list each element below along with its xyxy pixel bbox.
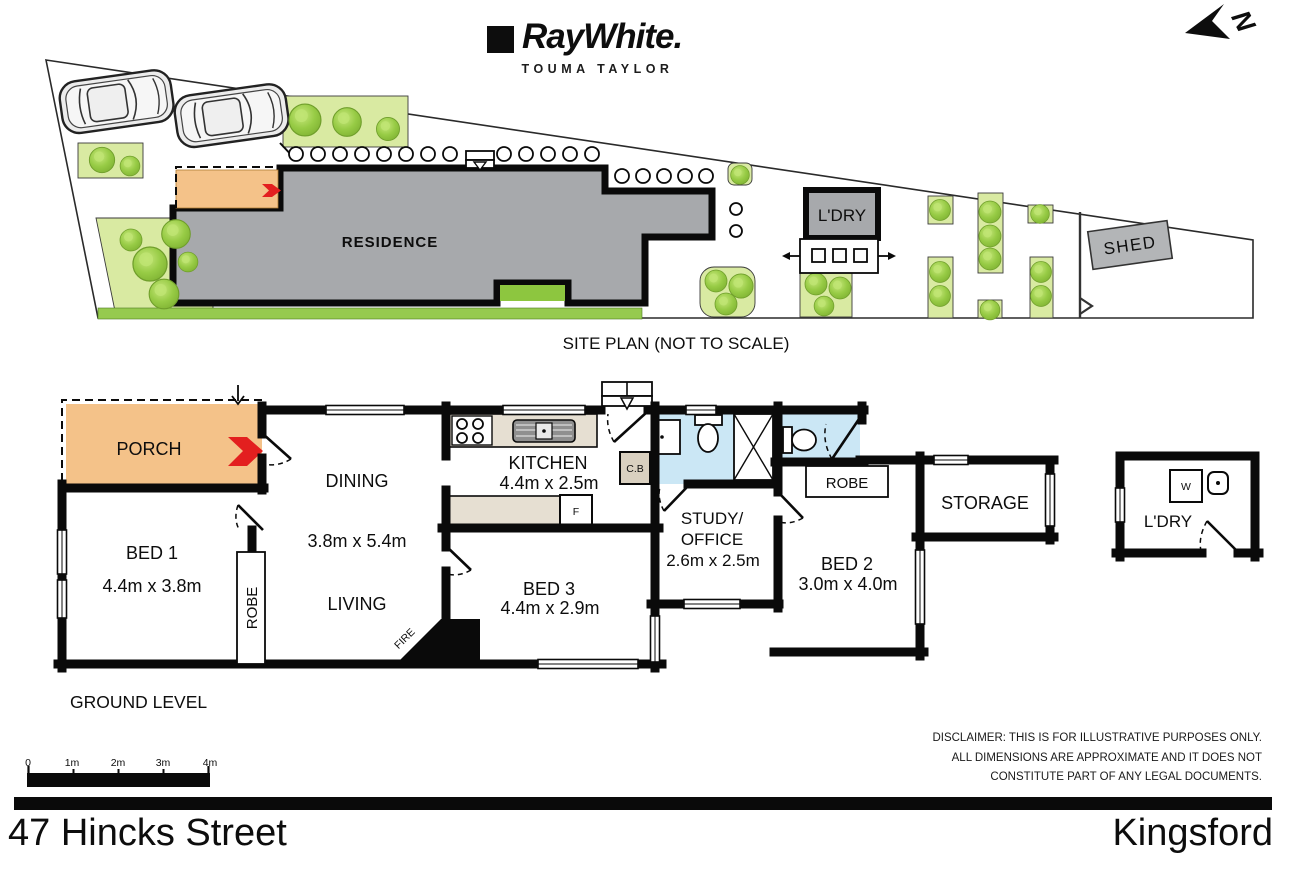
living-label: LIVING (327, 594, 386, 614)
scale-4m: 4m (203, 757, 218, 769)
disclaimer: DISCLAIMER: THIS IS FOR ILLUSTRATIVE PUR… (932, 729, 1262, 788)
floorplan-page: RayWhite. TOUMA TAYLOR (0, 0, 1289, 870)
robe-bed2-label: ROBE (826, 475, 869, 492)
study-label-line2: OFFICE (681, 530, 743, 549)
suburb: Kingsford (1112, 812, 1273, 855)
north-label: N (1225, 6, 1261, 38)
washer-label: W (1181, 481, 1191, 493)
rear-steps (602, 382, 652, 409)
kitchen-label: KITCHEN (508, 453, 587, 473)
porch-label: PORCH (116, 439, 181, 459)
site-plan: L'DRY SHED RESIDENCE SITE PLAN (NOT TO S (46, 60, 1253, 353)
scale-2m: 2m (111, 757, 126, 769)
wc-toilet-icon (783, 427, 816, 453)
laundry-label: L'DRY (1144, 512, 1192, 531)
bed3-dims: 4.4m x 2.9m (500, 598, 599, 618)
separator-bar (14, 797, 1272, 810)
bed2-dims: 3.0m x 4.0m (798, 574, 897, 594)
shower-icon (734, 414, 773, 480)
storage-label: STORAGE (941, 493, 1029, 513)
cupboard-label: C.B (626, 463, 644, 475)
kitchen-dims: 4.4m x 2.5m (499, 473, 598, 493)
residence-deck-garden (500, 285, 565, 301)
vanity-icon (656, 420, 680, 454)
residence-label: RESIDENCE (342, 234, 439, 251)
site-plan-caption: SITE PLAN (NOT TO SCALE) (563, 334, 790, 353)
cooktop-icon (452, 416, 492, 445)
level-label: GROUND LEVEL (70, 692, 207, 712)
sink-icon (513, 420, 575, 442)
disclaimer-line: DISCLAIMER: THIS IS FOR ILLUSTRATIVE PUR… (932, 729, 1262, 749)
north-compass-icon: N (1185, 4, 1261, 39)
site-rear-steps (466, 151, 494, 170)
scale-1m: 1m (65, 757, 80, 769)
disclaimer-line: CONSTITUTE PART OF ANY LEGAL DOCUMENTS. (932, 768, 1262, 788)
bed1-label: BED 1 (126, 543, 178, 563)
scale-bar: 0 1m 2m 3m 4m (25, 757, 217, 787)
bed1-dims: 4.4m x 3.8m (102, 576, 201, 596)
site-laundry-label: L'DRY (818, 206, 866, 225)
disclaimer-line: ALL DIMENSIONS ARE APPROXIMATE AND IT DO… (932, 749, 1262, 769)
floor-plan: F C.B FIRE (58, 382, 1260, 712)
street-address: 47 Hincks Street (8, 812, 287, 855)
living-dining-dims: 3.8m x 5.4m (307, 531, 406, 551)
bed2-label: BED 2 (821, 554, 873, 574)
study-label-line1: STUDY/ (681, 509, 744, 528)
robe-bed1-label: ROBE (244, 587, 261, 630)
fridge-label: F (573, 506, 579, 518)
site-porch (176, 170, 278, 208)
dining-label: DINING (326, 471, 389, 491)
bed3-label: BED 3 (523, 579, 575, 599)
laundry-fittings: W (1170, 470, 1228, 502)
lawn-strip (98, 308, 642, 319)
study-dims: 2.6m x 2.5m (666, 551, 760, 570)
scale-3m: 3m (156, 757, 171, 769)
